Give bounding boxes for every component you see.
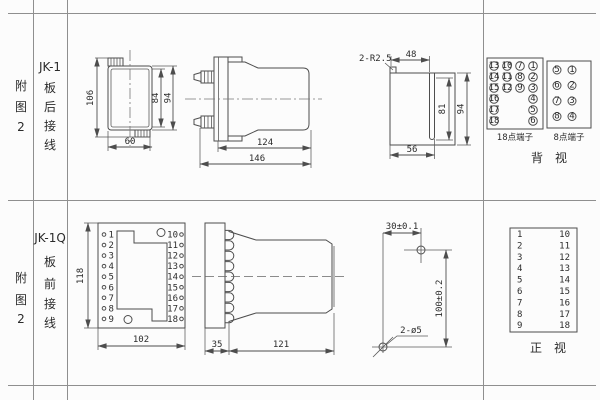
fig-char: 2 [17,120,25,134]
terminal18-grid: 131071141182151293164175186 [489,61,538,126]
terminal-hole [102,264,106,268]
terminal-pin-number: 14 [489,72,500,82]
terminal-number: 11 [167,241,178,251]
terminal-pin-number: 1 [569,65,574,75]
terminal-pin-number: 5 [554,65,559,75]
table-number-right: 17 [559,310,570,320]
terminal-pin-number: 5 [530,105,535,115]
jk1q-drill-template: 30±0.1 100±0.2 2-ø5 [372,222,452,357]
drawing-svg: 附 图 2 JK-1 板 后 接 线 106 84 94 60 [0,0,600,400]
terminal-pin-number: 16 [489,94,500,104]
terminal-bump [225,282,234,291]
terminal-bump [225,293,234,302]
rear-view: 131071141182151293164175186 51627384 18点… [487,58,591,165]
dim-text-84: 84 [151,93,161,104]
mount-tab-ribs [138,130,147,137]
dim-text-48: 48 [406,50,417,60]
table-number-left: 5 [517,276,522,286]
terminal-pin-number: 12 [502,83,513,93]
terminal-ribs [205,71,212,83]
terminal-number: 10 [167,231,178,241]
terminal-pin-number: 4 [530,94,535,104]
front-view-table: 123456789101112131415161718 正 视 [510,228,577,355]
terminal-number: 6 [109,283,114,293]
dim-text-94: 94 [457,104,467,115]
terminal-hole [102,275,106,279]
wiring-char: 板 [44,255,56,269]
table-number-right: 12 [559,253,570,263]
terminal-number: 12 [167,252,178,262]
table-number-right: 11 [559,241,570,251]
terminal-hole [102,243,106,247]
jk1-side-view: 124 146 [185,57,322,168]
terminal-pin-number: 6 [530,116,535,126]
terminal-hole [180,285,184,289]
row1-fig-label: 附 图 2 [15,79,27,134]
terminal-tip [194,73,201,82]
table-number-left: 6 [517,287,522,297]
terminal-number: 14 [167,273,178,283]
terminal-pin-number: 9 [517,83,522,93]
terminal-pin-number: 8 [517,72,522,82]
terminal-hole [102,254,106,258]
terminal-pin-number: 2 [569,80,574,90]
terminal-pin-number: 4 [569,111,574,121]
terminal-number: 2 [109,241,114,251]
table-number-right: 16 [559,298,570,308]
terminal-hole [180,233,184,237]
terminal-pin-number: 15 [489,83,500,93]
dim-text-124: 124 [257,138,273,148]
wiring-char: 接 [44,296,56,311]
terminal-number: 16 [167,294,178,304]
hole-note: 2-ø5 [400,326,422,336]
terminal-pin-number: 17 [489,105,500,115]
front-view-caption: 正 视 [530,340,566,355]
dim-text-146: 146 [249,154,265,164]
table-number-left: 2 [517,241,522,251]
wiring-char: 后 [44,100,56,114]
wiring-char: 板 [44,81,56,95]
terminal-pin-number: 11 [502,72,513,82]
terminal-pin-number: 1 [530,61,535,71]
terminal-hole [180,296,184,300]
table-number-right: 15 [559,287,570,297]
jk1-front-view: 106 84 94 60 [86,50,177,151]
screw-hole [124,316,132,324]
wiring-char: 前 [44,276,56,291]
terminal-hole [180,307,184,311]
terminal-hole [102,296,106,300]
dim-text-60: 60 [125,137,136,147]
terminal-number: 18 [167,315,178,325]
row1-model-label: JK-1 板 后 接 线 [38,60,61,152]
terminal-hole [180,254,184,258]
terminal-hole [102,233,106,237]
terminal8-label: 8点端子 [554,132,585,143]
jk1q-side-view: 35 121 [192,223,346,355]
terminal-pin-number: 13 [489,61,500,71]
ext-line [95,58,177,151]
wiring-char: 线 [44,316,56,330]
mount-tab-ribs [111,58,120,66]
terminal-pin-number: 6 [554,80,559,90]
terminal-bump [225,303,234,312]
terminal-number: 4 [109,262,114,272]
jk1-panel-cutout: 2-R2.5 48 81 94 56 [359,50,471,159]
dim-text-121: 121 [273,340,289,350]
rear-view-caption: 背 视 [531,150,567,165]
table-number-right: 14 [559,276,570,286]
dim-text-106: 106 [86,90,96,106]
terminal-number: 3 [109,252,114,262]
dim-text-102: 102 [133,335,149,345]
terminal-ribs [205,116,212,128]
terminal-pin-number: 8 [554,111,559,121]
fig-char: 2 [17,312,25,326]
dim-text-100: 100±0.2 [435,280,445,318]
terminal-screw [201,116,214,128]
front-view-table-numbers: 123456789101112131415161718 [517,230,570,331]
terminal18-label: 18点端子 [497,132,534,143]
terminal-hole [102,307,106,311]
table-number-left: 8 [517,310,522,320]
dim-text-118: 118 [76,268,86,284]
model-name: JK-1 [38,60,61,74]
dim-text-30: 30±0.1 [386,222,419,232]
cutout-slot [430,73,435,140]
wiring-char: 线 [44,138,56,152]
table-number-right: 18 [559,321,570,331]
terminal-number: 7 [109,294,114,304]
terminal-bump [225,241,234,250]
terminal-hole [180,317,184,321]
table-number-left: 7 [517,298,522,308]
table-number-right: 13 [559,264,570,274]
fig-char: 附 [15,79,27,93]
table-number-left: 3 [517,253,522,263]
dim-text-56: 56 [407,145,418,155]
table-number-right: 10 [559,230,570,240]
terminal-pin-number: 7 [517,61,522,71]
terminal-hole [102,285,106,289]
terminal-number: 8 [109,304,114,314]
fig-char: 附 [15,271,27,285]
terminal-bump [225,262,234,271]
terminal-pin-number: 10 [502,61,513,71]
terminal-pin-number: 3 [569,96,574,106]
jk1q-front-view: 123456789101112131415161718 118 102 [76,223,185,350]
terminal-screw [201,71,214,83]
table-number-left: 1 [517,230,522,240]
terminal-number: 13 [167,262,178,272]
terminal8-grid: 51627384 [553,65,576,122]
drawing-sheet: 附 图 2 JK-1 板 后 接 线 106 84 94 60 [0,0,600,400]
row2-model-label: JK-1Q 板 前 接 线 [33,231,66,330]
dim-text-35: 35 [212,340,223,350]
terminal-number: 9 [109,315,114,325]
fig-char: 图 [15,100,27,114]
dim-text-94: 94 [164,93,174,104]
terminal-number: 15 [167,283,178,293]
terminal-hole [180,243,184,247]
terminal-number: 1 [109,231,114,241]
terminal-hole [180,264,184,268]
terminal-pin-number: 3 [530,83,535,93]
terminal-tip [194,118,201,127]
terminal-hole [102,317,106,321]
terminal-number: 17 [167,304,178,314]
board-step-outline [117,231,167,321]
terminal-bump [225,251,234,260]
terminal-pin-number: 2 [530,72,535,82]
ext-line [205,313,334,355]
jk1q-front-terminals: 123456789101112131415161718 [102,231,183,325]
table-number-left: 4 [517,264,522,274]
row2-fig-label: 附 图 2 [15,271,27,326]
terminal-number: 5 [109,273,114,283]
screw-hole [157,229,165,237]
fig-char: 图 [15,293,27,307]
terminal-pin-number: 7 [554,96,559,106]
dim-text-81: 81 [438,104,448,115]
terminal-plate [205,223,225,328]
model-name: JK-1Q [33,231,66,245]
wiring-char: 接 [44,118,56,133]
terminal-hole [180,275,184,279]
radius-note: 2-R2.5 [359,54,392,64]
mount-tab [108,58,123,66]
table-number-left: 9 [517,321,522,331]
terminal-pin-number: 18 [489,116,500,126]
mount-tab [135,130,150,137]
